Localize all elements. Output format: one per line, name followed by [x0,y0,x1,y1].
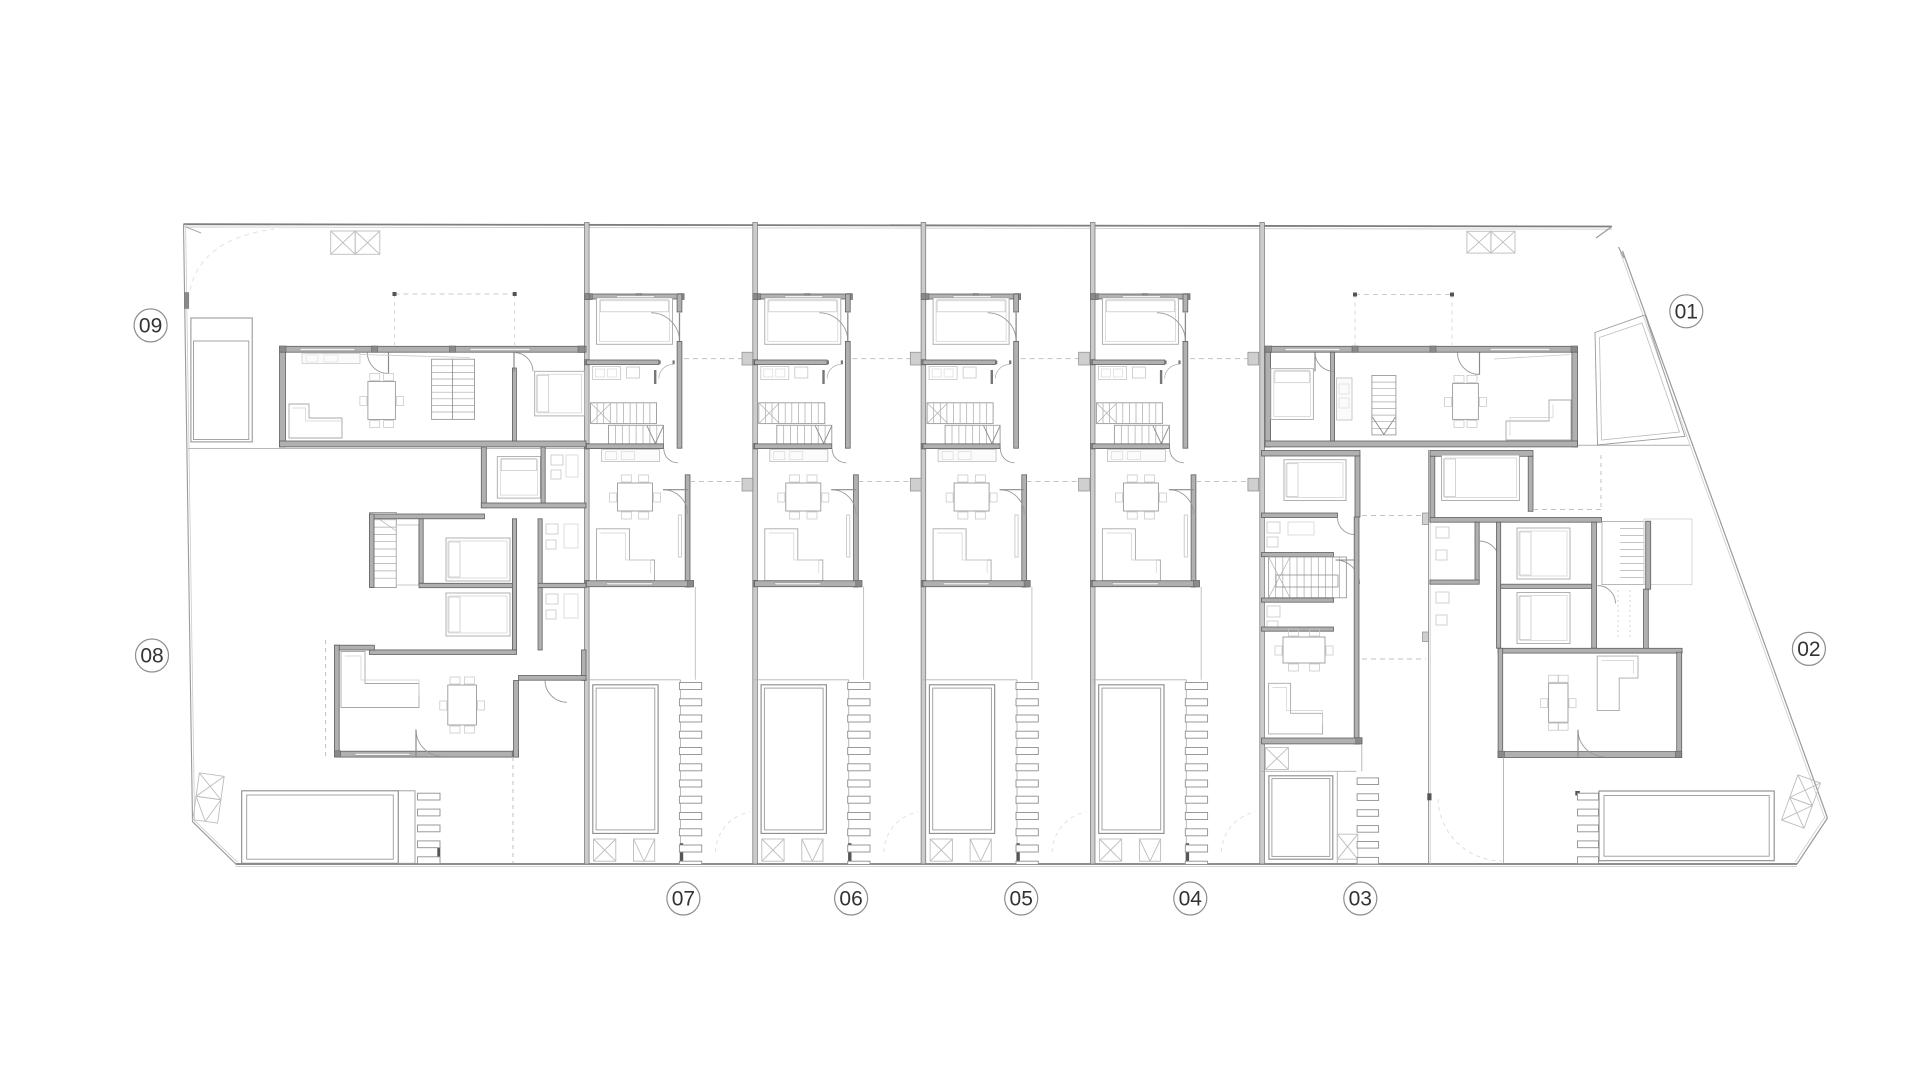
svg-text:08: 08 [140,645,163,668]
svg-text:04: 04 [1179,888,1203,911]
svg-text:03: 03 [1349,888,1372,911]
svg-text:05: 05 [1010,888,1033,911]
svg-text:01: 01 [1675,301,1698,324]
svg-text:06: 06 [839,888,862,911]
svg-text:09: 09 [139,315,162,338]
svg-text:07: 07 [672,888,695,911]
svg-text:02: 02 [1797,638,1820,661]
